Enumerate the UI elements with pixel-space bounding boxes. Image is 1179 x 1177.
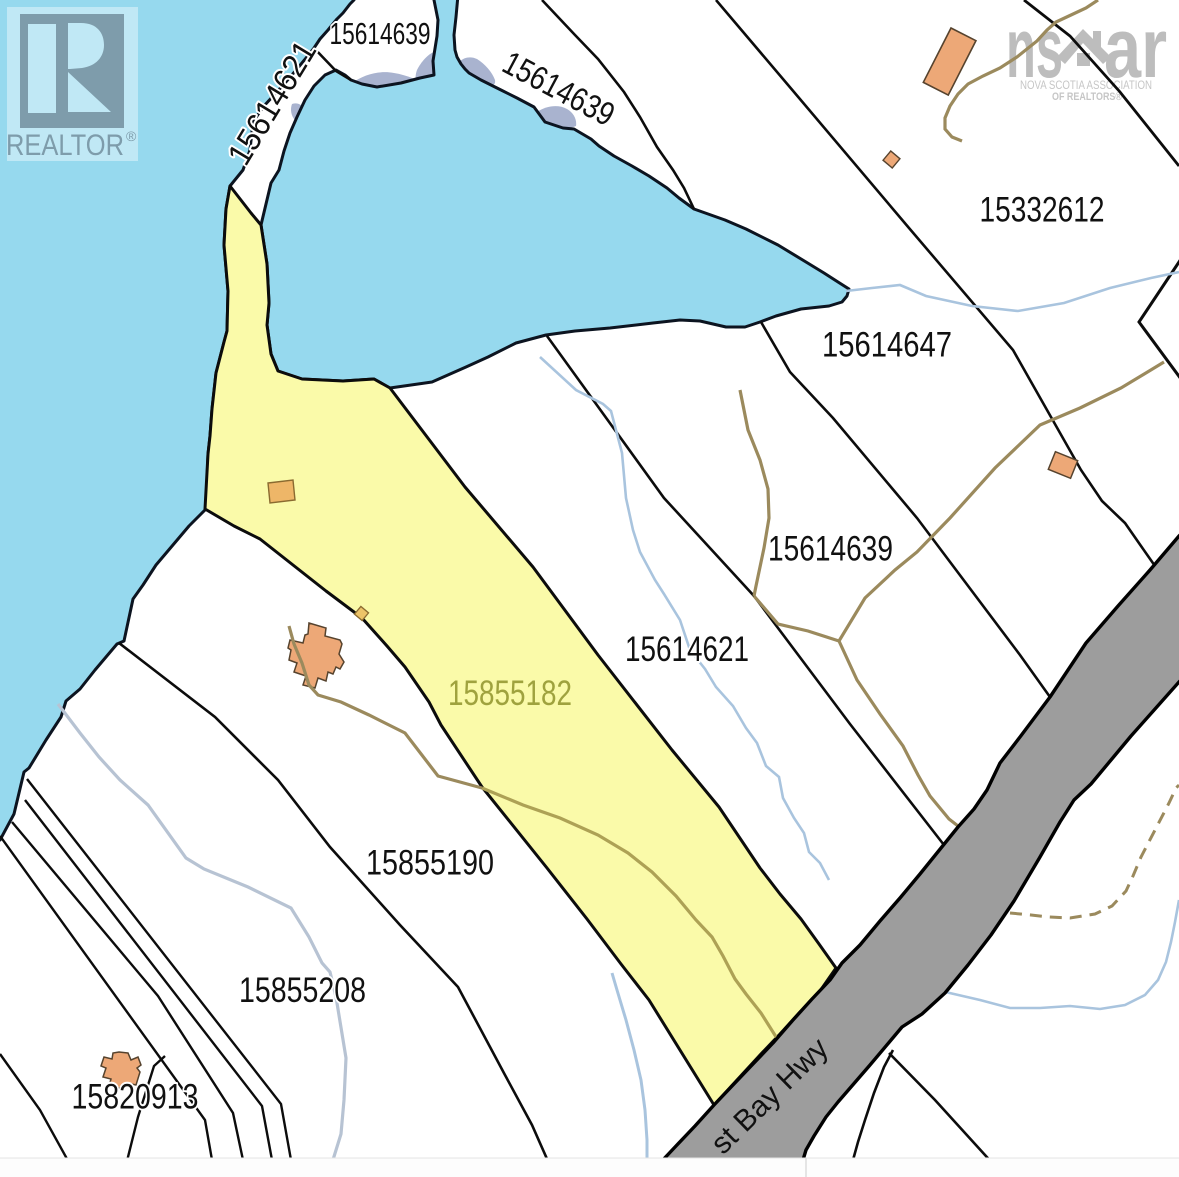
svg-text:®: ® xyxy=(126,128,137,144)
svg-text:15855208: 15855208 xyxy=(239,971,366,1010)
svg-text:15614639: 15614639 xyxy=(330,16,431,51)
svg-text:15820913: 15820913 xyxy=(72,1078,199,1117)
svg-text:15855190: 15855190 xyxy=(366,844,494,883)
svg-text:15614647: 15614647 xyxy=(822,326,952,365)
svg-text:15332612: 15332612 xyxy=(980,191,1105,230)
svg-text:REALTOR: REALTOR xyxy=(6,129,124,162)
svg-text:OF REALTORS®: OF REALTORS® xyxy=(1052,91,1122,103)
svg-text:15614639: 15614639 xyxy=(768,530,893,569)
svg-text:15614621: 15614621 xyxy=(625,630,749,669)
svg-text:15855182: 15855182 xyxy=(448,674,572,713)
